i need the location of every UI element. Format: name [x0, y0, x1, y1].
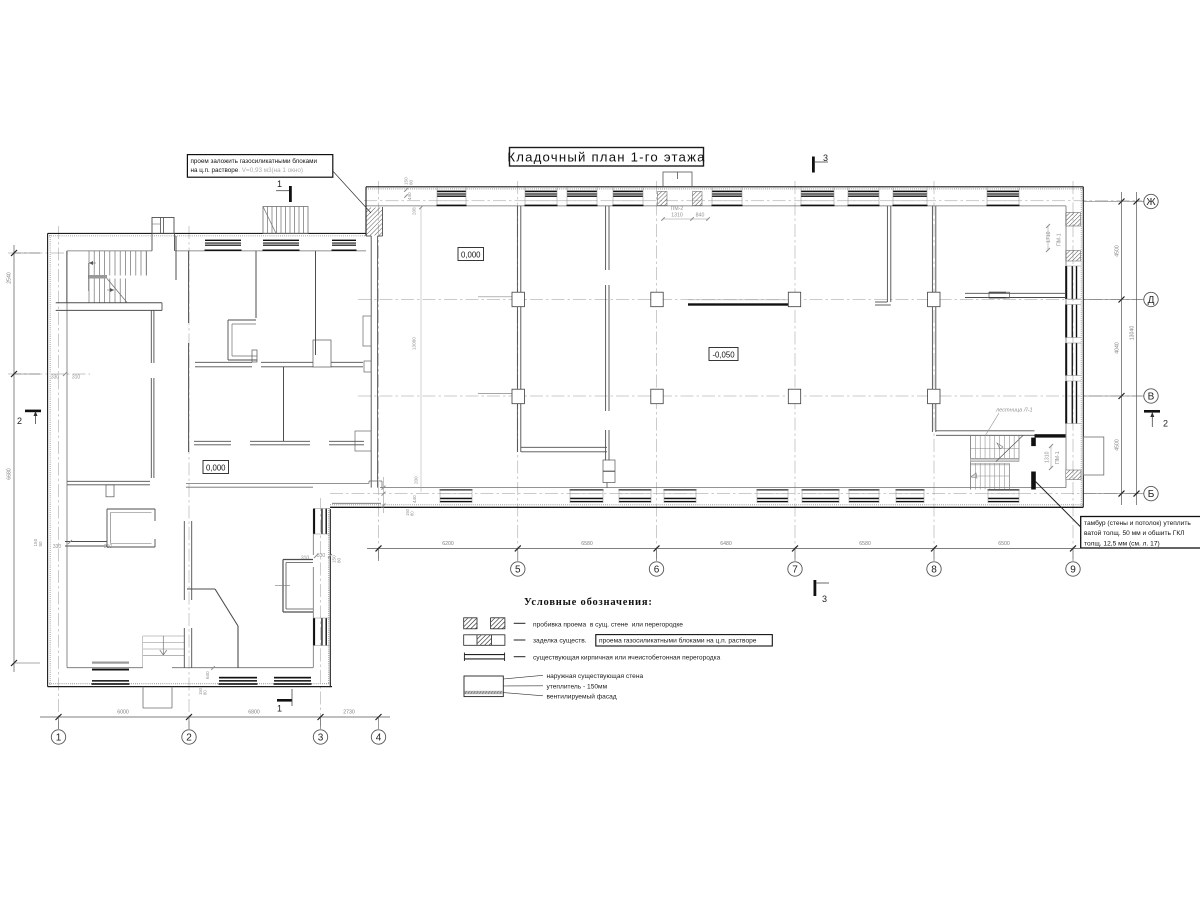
svg-text:1310: 1310 — [671, 213, 683, 219]
svg-text:6580: 6580 — [581, 541, 593, 547]
svg-text:4: 4 — [376, 732, 382, 743]
svg-text:Условные обозначения:: Условные обозначения: — [524, 597, 653, 608]
svg-text:80: 80 — [38, 541, 43, 547]
svg-text:4040: 4040 — [1115, 342, 1121, 354]
svg-text:440: 440 — [412, 495, 417, 503]
svg-text:Кладочный план 1-го этажа: Кладочный план 1-го этажа — [507, 150, 705, 165]
svg-text:840: 840 — [696, 213, 705, 219]
svg-text:пробивка проема в сущ. стене: пробивка проема в сущ. стене или перегор… — [533, 620, 683, 628]
svg-text:8: 8 — [931, 564, 937, 575]
svg-text:0,000: 0,000 — [461, 250, 481, 259]
svg-text:существующая кирпичная или яче: существующая кирпичная или ячеистобетонн… — [533, 653, 721, 661]
svg-text:наружная существующая стена: наружная существующая стена — [547, 673, 644, 680]
svg-text:-0,050: -0,050 — [712, 350, 735, 359]
svg-text:7: 7 — [792, 564, 798, 575]
svg-text:80: 80 — [337, 557, 342, 563]
svg-text:2: 2 — [1163, 419, 1168, 429]
svg-text:13080: 13080 — [412, 337, 417, 350]
svg-text:9: 9 — [1070, 564, 1076, 575]
svg-text:1: 1 — [277, 704, 282, 714]
svg-text:проем заложить газосиликатными: проем заложить газосиликатными блоками — [191, 157, 318, 165]
svg-text:310: 310 — [301, 556, 310, 562]
svg-text:вентилируемый фасад: вентилируемый фасад — [547, 693, 617, 701]
svg-text:0,000: 0,000 — [206, 463, 226, 472]
svg-text:1310: 1310 — [1045, 451, 1051, 463]
svg-text:2730: 2730 — [343, 710, 355, 716]
svg-text:6680: 6680 — [7, 468, 13, 480]
svg-text:330: 330 — [51, 375, 60, 381]
svg-text:6: 6 — [654, 564, 660, 575]
svg-text:2: 2 — [17, 416, 22, 426]
svg-text:4500: 4500 — [1115, 245, 1121, 257]
svg-text:Ж: Ж — [1146, 197, 1156, 208]
svg-text:тамбур (стены и потолок) утепл: тамбур (стены и потолок) утеплить — [1084, 519, 1191, 527]
svg-text:толщ. 12,5 мм (см. л. 17): толщ. 12,5 мм (см. л. 17) — [1084, 541, 1160, 548]
svg-text:1: 1 — [277, 179, 282, 189]
svg-text:6000: 6000 — [117, 710, 129, 716]
svg-text:6500: 6500 — [998, 541, 1010, 547]
svg-text:на ц.п. растворе. V=0,93 м3(на: на ц.п. растворе. V=0,93 м3(на 1 окно) — [191, 167, 303, 174]
svg-text:3: 3 — [822, 594, 827, 604]
svg-text:5: 5 — [515, 564, 521, 575]
svg-text:6480: 6480 — [720, 541, 732, 547]
svg-text:6800: 6800 — [248, 710, 260, 716]
svg-text:1: 1 — [56, 732, 62, 743]
svg-text:2: 2 — [186, 732, 192, 743]
svg-text:Б: Б — [1148, 489, 1155, 500]
svg-text:Д: Д — [1148, 295, 1155, 306]
svg-text:80: 80 — [410, 511, 415, 516]
svg-text:ПМ-2: ПМ-2 — [671, 206, 684, 212]
svg-text:ПМ-1: ПМ-1 — [1055, 451, 1061, 464]
svg-text:ПМ-1: ПМ-1 — [1057, 233, 1063, 246]
svg-text:200: 200 — [414, 476, 419, 484]
svg-text:лестница Л-1: лестница Л-1 — [995, 408, 1033, 414]
svg-text:4500: 4500 — [1115, 439, 1121, 451]
svg-text:6580: 6580 — [859, 541, 871, 547]
svg-text:13040: 13040 — [1130, 326, 1136, 341]
svg-text:440: 440 — [407, 192, 412, 200]
svg-text:330: 330 — [53, 544, 62, 550]
svg-text:330: 330 — [317, 553, 326, 559]
svg-text:80: 80 — [409, 179, 414, 185]
svg-text:310: 310 — [72, 375, 81, 381]
svg-text:310: 310 — [104, 544, 113, 550]
svg-text:заделка существ.: заделка существ. — [533, 638, 587, 645]
svg-text:80: 80 — [203, 690, 208, 695]
svg-text:3: 3 — [823, 153, 828, 163]
svg-text:6200: 6200 — [442, 541, 454, 547]
svg-text:ватой толщ. 50 мм и обшить ГКЛ: ватой толщ. 50 мм и обшить ГКЛ — [1084, 529, 1185, 537]
svg-text:2540: 2540 — [7, 272, 13, 284]
svg-text:208: 208 — [412, 207, 417, 215]
svg-text:3: 3 — [318, 732, 324, 743]
svg-text:утеплитель - 150мм: утеплитель - 150мм — [547, 683, 608, 690]
svg-text:проема газосиликатными блоками: проема газосиликатными блоками на ц.п. р… — [599, 637, 757, 645]
svg-text:640: 640 — [205, 671, 210, 679]
svg-text:1710: 1710 — [1046, 231, 1052, 243]
svg-text:В: В — [1148, 391, 1155, 402]
